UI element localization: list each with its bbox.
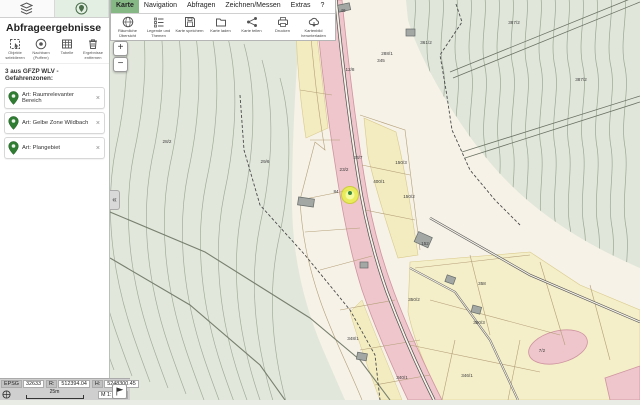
- tool-label: Drucken: [275, 29, 290, 34]
- tab-query-results[interactable]: [55, 0, 110, 17]
- tool-label: Objekte selektieren: [2, 51, 28, 60]
- globe-status-icon: [2, 390, 11, 399]
- print-button[interactable]: Drucken: [267, 16, 298, 38]
- map-pin-icon: [8, 91, 19, 105]
- parcel-label: 46: [340, 8, 346, 13]
- trash-icon: [87, 38, 99, 50]
- tool-label: Karte laden: [210, 29, 230, 34]
- ribbon-tab-extras[interactable]: Extras: [286, 0, 316, 13]
- parcel-label: 152: [421, 241, 429, 246]
- epsg-label: EPSG: [1, 380, 22, 388]
- table-icon: [61, 38, 73, 50]
- parcel-label: 350/2: [408, 297, 420, 302]
- ribbon-tab-help[interactable]: ?: [316, 0, 330, 13]
- parcel-label: 150/2: [403, 194, 415, 199]
- results-section-title: 3 aus GFZP WLV - Gefahrenzonen:: [0, 64, 109, 84]
- parcel-label: 340/1: [396, 375, 408, 380]
- epsg-value: 32633: [23, 380, 44, 388]
- ribbon-tab-abfragen[interactable]: Abfragen: [182, 0, 220, 13]
- legend-icon: [153, 16, 165, 28]
- marker-tool-button[interactable]: [112, 384, 127, 399]
- parcel-label: 387/2: [508, 20, 520, 25]
- buffer-icon: [35, 38, 47, 50]
- tool-label: Karte speichern: [175, 29, 203, 34]
- tool-label: Karte teilen: [241, 29, 261, 34]
- remove-results-button[interactable]: Ergebnisse entfernen: [80, 38, 106, 60]
- scale-row: 25m M 1:1.000: [0, 389, 130, 400]
- parcel-label: 358: [478, 281, 486, 286]
- overview-button[interactable]: Räumliche Übersicht: [112, 16, 143, 38]
- results-panel: Abfrageergebnisse Objekte selektieren Na…: [0, 0, 110, 400]
- scale-bar-line: [26, 395, 84, 399]
- tool-label: Legende und Themen: [143, 29, 174, 38]
- download-map-image-button[interactable]: Kartenbild herunterladen: [298, 16, 329, 38]
- result-label: Art: Raumrelevanter Bereich: [22, 92, 95, 104]
- tool-label: Kartenbild herunterladen: [298, 29, 329, 38]
- r-label: R:: [46, 380, 57, 388]
- parcel-label: 400/1: [373, 179, 385, 184]
- buffer-button[interactable]: Nachbarn (Puffern): [28, 38, 54, 60]
- r-coordinate: 512394.04: [58, 380, 89, 388]
- parcel-label: 387/2: [575, 77, 587, 82]
- save-icon: [184, 16, 196, 28]
- parcel-label: 150/3: [395, 160, 407, 165]
- result-label: Art: Gelbe Zone Wildbach: [22, 120, 95, 126]
- parcel-label: 7/2: [539, 348, 546, 353]
- parcel-label: 29/6: [261, 159, 270, 164]
- share-icon: [246, 16, 258, 28]
- panel-tab-bar: [0, 0, 109, 18]
- ribbon-tab-bar: Karte Navigation Abfragen Zeichnen/Messe…: [111, 0, 335, 14]
- map-pin-icon: [8, 116, 19, 130]
- parcel-label: 346/1: [461, 373, 473, 378]
- parcel-label: 361/2: [420, 40, 432, 45]
- map-pin-icon: [8, 141, 19, 155]
- share-map-button[interactable]: Karte teilen: [236, 16, 267, 38]
- ribbon-tab-karte[interactable]: Karte: [111, 0, 139, 13]
- result-item[interactable]: Art: Gelbe Zone Wildbach ×: [4, 112, 105, 134]
- map-canvas: 4612/8288/1345361/2387/2387/228/229/623/…: [110, 0, 640, 400]
- ribbon-toolbar: Räumliche Übersicht Legende und Themen K…: [111, 14, 335, 40]
- close-icon[interactable]: ×: [95, 120, 101, 127]
- close-icon[interactable]: ×: [95, 145, 101, 152]
- ribbon-tab-zeichnen-messen[interactable]: Zeichnen/Messen: [220, 0, 285, 13]
- save-map-button[interactable]: Karte speichern: [174, 16, 205, 38]
- flag-icon: [115, 387, 124, 396]
- legend-themes-button[interactable]: Legende und Themen: [143, 16, 174, 38]
- result-label: Art: Plangebiet: [22, 145, 95, 151]
- cloud-download-icon: [308, 16, 320, 28]
- parcel-label: 288/1: [381, 51, 393, 56]
- ribbon-tab-navigation[interactable]: Navigation: [139, 0, 182, 13]
- panel-title: Abfrageergebnisse: [0, 18, 109, 36]
- layers-icon: [20, 2, 33, 15]
- tool-label: Tabelle: [61, 51, 74, 56]
- load-map-button[interactable]: Karte laden: [205, 16, 236, 38]
- status-bar: EPSG 32633 R: 512394.04 H: 5248300.45 25…: [0, 378, 130, 400]
- select-objects-icon: [9, 38, 21, 50]
- parcel-label: 28/2: [163, 139, 172, 144]
- highlighted-feature-marker[interactable]: [342, 187, 359, 204]
- map-viewport[interactable]: 4612/8288/1345361/2387/2387/228/229/623/…: [110, 0, 640, 400]
- panel-toolbar: Objekte selektieren Nachbarn (Puffern) T…: [0, 36, 109, 64]
- parcel-label: 350/3: [473, 320, 485, 325]
- parcel-label: 345: [377, 58, 385, 63]
- results-marker-icon: [75, 2, 88, 15]
- result-item[interactable]: Art: Raumrelevanter Bereich ×: [4, 87, 105, 109]
- table-button[interactable]: Tabelle: [54, 38, 80, 60]
- globe-icon: [122, 16, 134, 28]
- parcel-label: 348/1: [347, 336, 359, 341]
- folder-icon: [215, 16, 227, 28]
- map-ribbon: Karte Navigation Abfragen Zeichnen/Messe…: [110, 0, 336, 41]
- result-item[interactable]: Art: Plangebiet ×: [4, 137, 105, 159]
- h-label: H:: [92, 380, 103, 388]
- select-objects-button[interactable]: Objekte selektieren: [2, 38, 28, 60]
- tool-label: Nachbarn (Puffern): [28, 51, 54, 60]
- parcel-label: 12/8: [346, 67, 355, 72]
- tab-layers[interactable]: [0, 0, 55, 17]
- zoom-in-button[interactable]: +: [113, 41, 128, 56]
- coordinates-row: EPSG 32633 R: 512394.04 H: 5248300.45: [0, 378, 130, 389]
- parcel-label: 23/7: [354, 155, 363, 160]
- scale-bar: 25m: [14, 390, 95, 399]
- parcel-label: 84: [333, 189, 339, 194]
- printer-icon: [277, 16, 289, 28]
- panel-collapse-button[interactable]: «: [110, 190, 120, 210]
- close-icon[interactable]: ×: [95, 95, 101, 102]
- zoom-out-button[interactable]: −: [113, 57, 128, 72]
- tool-label: Räumliche Übersicht: [112, 29, 143, 38]
- tool-label: Ergebnisse entfernen: [80, 51, 106, 60]
- parcel-label: 23/2: [340, 167, 349, 172]
